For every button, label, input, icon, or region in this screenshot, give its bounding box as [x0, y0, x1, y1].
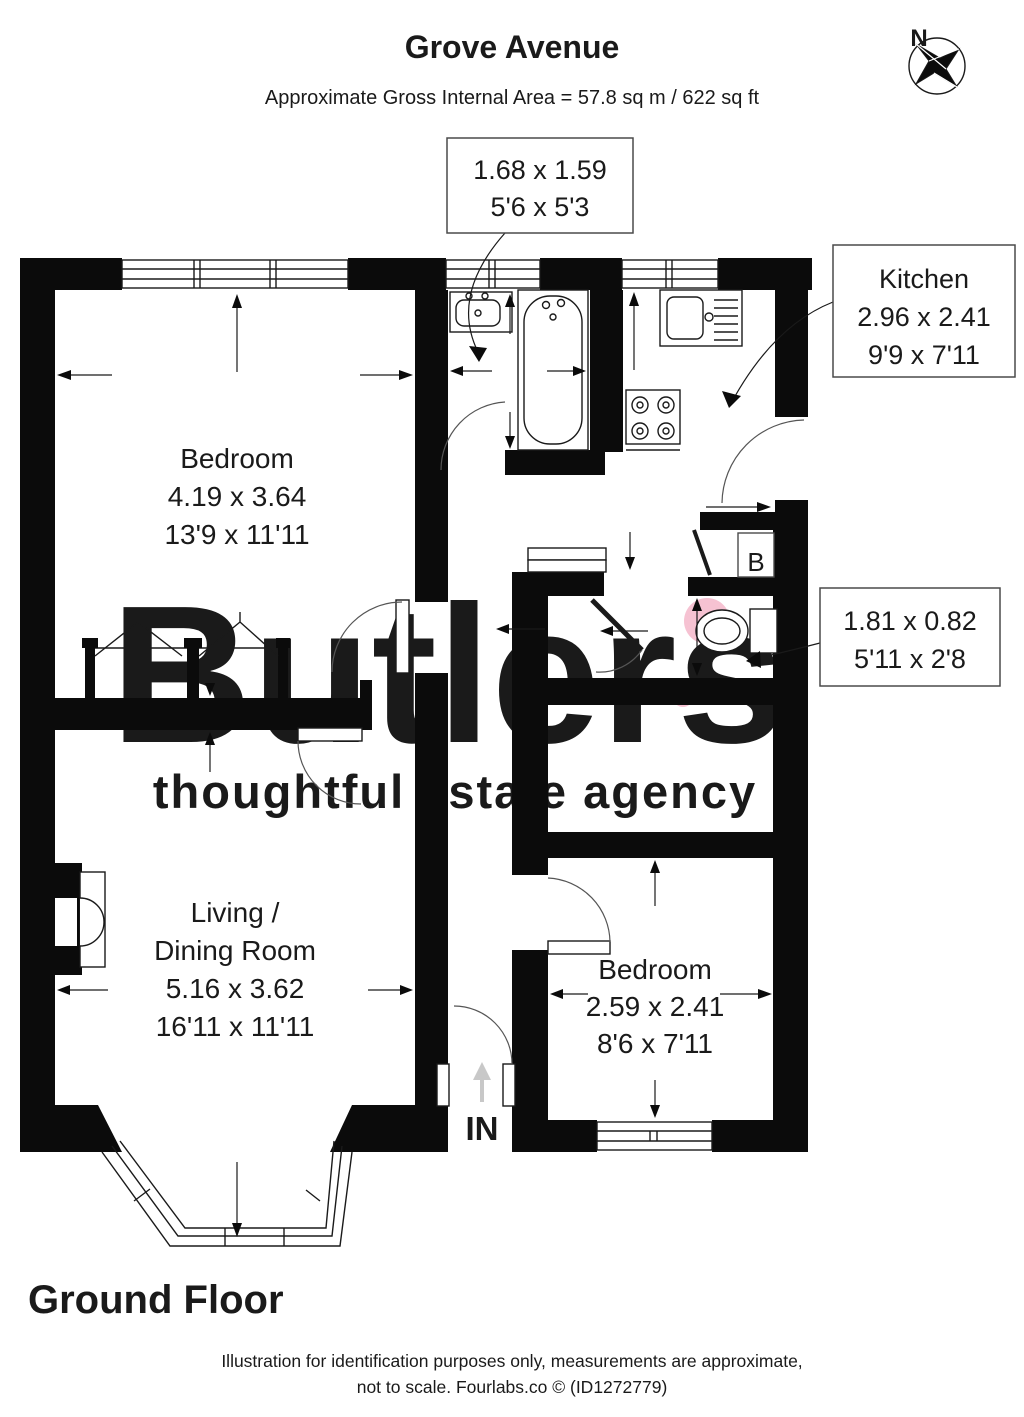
bedroom2-label: Bedroom 2.59 x 2.41 8'6 x 7'11	[586, 954, 725, 1059]
floor-title: Ground Floor	[28, 1278, 284, 1322]
bay-window-icon	[102, 1141, 352, 1246]
wc-dimension-box: 1.81 x 0.82 5'11 x 2'8	[820, 588, 1000, 686]
kitchen-side-door-icon	[722, 420, 804, 503]
kitchen-sink-icon	[660, 290, 742, 346]
kitchen-window-icon	[622, 260, 718, 288]
hall-cupboard-shelf-icon	[528, 548, 606, 572]
living-imperial-dims: 16'11 x 11'11	[156, 1011, 315, 1042]
door-jamb	[503, 1064, 515, 1106]
bedroom1-name-label: Bedroom	[180, 443, 294, 474]
hob-icon	[626, 390, 680, 450]
bathroom-door-icon	[441, 402, 505, 470]
disclaimer-line1: Illustration for identification purposes…	[221, 1351, 802, 1371]
living-metric-dims: 5.16 x 3.62	[166, 973, 305, 1004]
bedroom1-label: Bedroom 4.19 x 3.64 13'9 x 11'11	[164, 443, 309, 550]
bedroom2-metric-dims: 2.59 x 2.41	[586, 991, 725, 1022]
living-name-line1: Living /	[191, 897, 280, 928]
disclaimer-line2: not to scale. Fourlabs.co © (ID1272779)	[357, 1377, 668, 1397]
kitchen-metric-dims: 2.96 x 2.41	[857, 302, 991, 332]
entrance-label: IN	[466, 1110, 499, 1147]
bathroom-dimension-box: 1.68 x 1.59 5'6 x 5'3	[447, 138, 633, 233]
bedroom1-metric-dims: 4.19 x 3.64	[168, 481, 307, 512]
bedroom2-window-icon	[597, 1122, 712, 1150]
wc-imperial-dims: 5'11 x 2'8	[854, 644, 966, 674]
entrance-arrow-head-icon	[473, 1062, 491, 1080]
basin-icon	[450, 292, 512, 332]
page-title: Grove Avenue	[405, 29, 620, 65]
kitchen-name-label: Kitchen	[879, 264, 969, 294]
boiler-label: B	[747, 547, 764, 577]
door-jamb	[437, 1064, 449, 1106]
living-room-label: Living / Dining Room 5.16 x 3.62 16'11 x…	[154, 897, 316, 1042]
bedroom2-door-icon	[548, 878, 610, 954]
floorplan-drawing: Butlers thoughtful estate agency Grove A…	[0, 0, 1024, 1417]
fireplace-icon	[80, 872, 105, 967]
toilet-icon	[696, 609, 777, 653]
watermark-tagline-text: thoughtful estate agency	[153, 765, 757, 818]
living-name-line2: Dining Room	[154, 935, 316, 966]
bedroom2-imperial-dims: 8'6 x 7'11	[597, 1028, 713, 1059]
floorplan-page: Butlers thoughtful estate agency Grove A…	[0, 0, 1024, 1417]
wc-metric-dims: 1.81 x 0.82	[843, 606, 977, 636]
kitchen-dimension-box: Kitchen 2.96 x 2.41 9'9 x 7'11	[833, 245, 1015, 377]
kitchen-imperial-dims: 9'9 x 7'11	[868, 340, 980, 370]
bedroom2-name-label: Bedroom	[598, 954, 712, 985]
page-subtitle: Approximate Gross Internal Area = 57.8 s…	[265, 87, 760, 109]
bedroom1-imperial-dims: 13'9 x 11'11	[164, 519, 309, 550]
bathroom-metric-dims: 1.68 x 1.59	[473, 155, 607, 185]
bedroom1-window-icon	[122, 260, 348, 288]
bathroom-window-icon	[446, 260, 540, 288]
entrance-marker: IN	[466, 1062, 499, 1147]
compass-icon: N	[909, 25, 965, 94]
front-door-icon	[454, 1006, 512, 1064]
bathroom-imperial-dims: 5'6 x 5'3	[491, 192, 590, 222]
